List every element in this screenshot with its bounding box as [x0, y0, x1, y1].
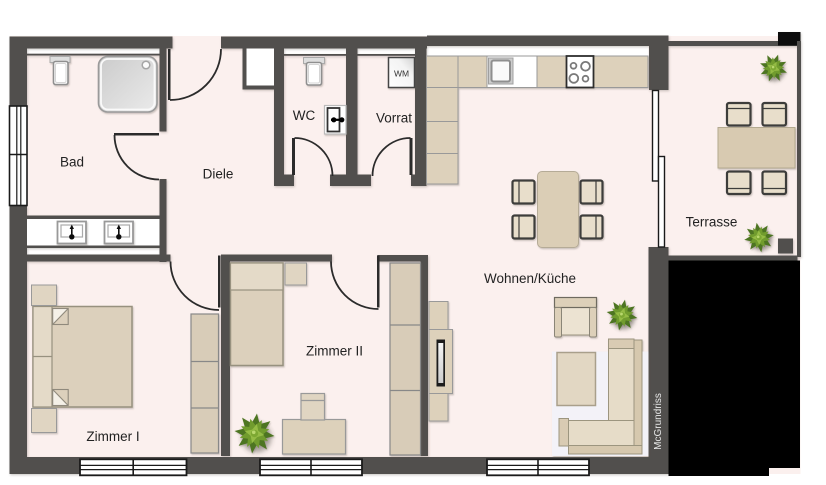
svg-text:Terrasse: Terrasse — [686, 215, 738, 230]
svg-text:WM: WM — [394, 69, 409, 79]
svg-text:Bad: Bad — [60, 155, 84, 170]
svg-text:WC: WC — [293, 108, 316, 123]
svg-text:Zimmer II: Zimmer II — [306, 344, 363, 359]
svg-text:McGrundriss: McGrundriss — [653, 393, 664, 450]
svg-text:Zimmer I: Zimmer I — [86, 429, 139, 444]
svg-text:Vorrat: Vorrat — [376, 111, 412, 126]
svg-text:Diele: Diele — [203, 167, 234, 182]
svg-text:Wohnen/Küche: Wohnen/Küche — [484, 271, 576, 286]
